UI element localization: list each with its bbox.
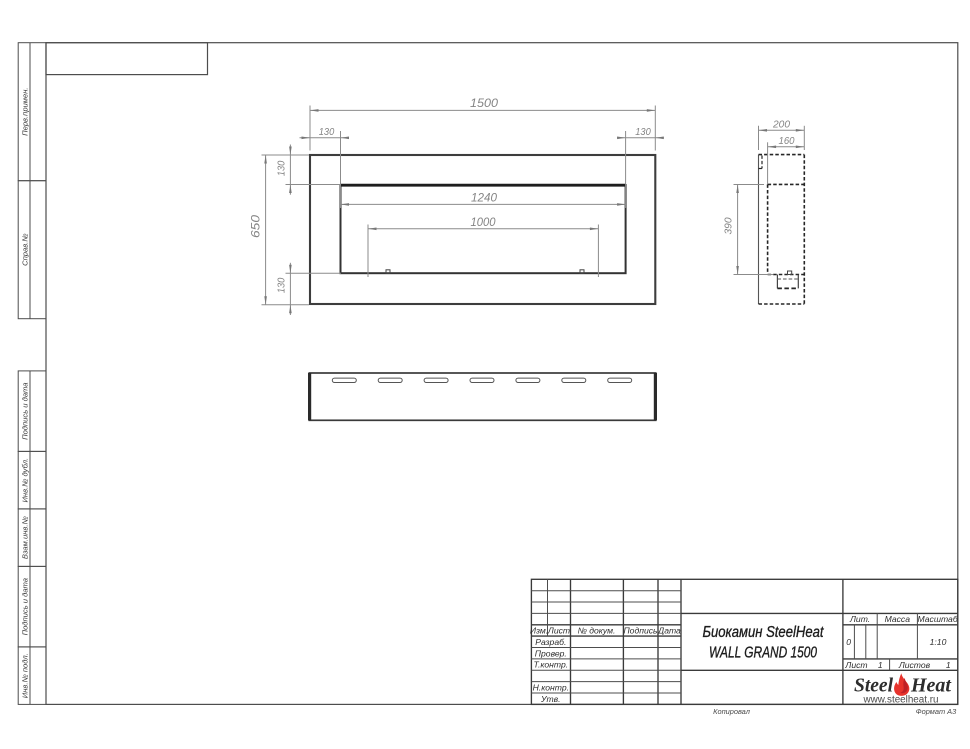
- svg-text:130: 130: [319, 126, 335, 138]
- svg-text:Листов: Листов: [898, 660, 931, 670]
- svg-text:www.steelheat.ru: www.steelheat.ru: [863, 695, 939, 706]
- svg-text:Подпись и дата: Подпись и дата: [21, 578, 30, 635]
- svg-text:Лист: Лист: [844, 660, 867, 670]
- svg-text:Формат А3: Формат А3: [916, 707, 957, 716]
- svg-text:1:10: 1:10: [930, 637, 947, 647]
- svg-text:650: 650: [249, 215, 263, 238]
- svg-text:Масса: Масса: [885, 614, 911, 624]
- svg-text:Изм.: Изм.: [530, 626, 548, 636]
- svg-text:1240: 1240: [471, 193, 498, 205]
- svg-text:130: 130: [276, 161, 288, 177]
- svg-text:Провер.: Провер.: [535, 648, 567, 658]
- svg-text:160: 160: [779, 135, 795, 147]
- svg-text:№ докум.: № докум.: [578, 626, 616, 636]
- svg-text:Heat: Heat: [910, 676, 952, 697]
- svg-text:Лит.: Лит.: [849, 614, 870, 624]
- svg-text:Перв.примен.: Перв.примен.: [21, 88, 30, 136]
- svg-text:Биокамин SteelHeat: Биокамин SteelHeat: [703, 624, 825, 641]
- svg-text:130: 130: [276, 278, 288, 294]
- svg-text:1500: 1500: [470, 98, 499, 110]
- svg-text:WALL GRAND 1500: WALL GRAND 1500: [709, 645, 817, 662]
- svg-text:Справ.№: Справ.№: [21, 233, 30, 265]
- svg-text:Дата: Дата: [657, 626, 681, 636]
- svg-text:Лист: Лист: [547, 626, 570, 636]
- svg-text:Подпись: Подпись: [623, 626, 658, 636]
- svg-text:Инв.№ дубл.: Инв.№ дубл.: [21, 458, 30, 503]
- svg-text:0: 0: [846, 637, 851, 647]
- svg-text:390: 390: [723, 217, 735, 234]
- svg-text:1: 1: [946, 660, 951, 670]
- svg-text:Копировал: Копировал: [713, 707, 751, 716]
- svg-text:Steel: Steel: [854, 676, 894, 697]
- svg-text:Утв.: Утв.: [540, 694, 561, 704]
- svg-text:Взам.инв.№: Взам.инв.№: [21, 516, 30, 559]
- svg-text:Подпись и дата: Подпись и дата: [21, 382, 30, 439]
- svg-text:1: 1: [878, 660, 883, 670]
- svg-text:Разраб.: Разраб.: [535, 637, 566, 647]
- svg-text:Н.контр.: Н.контр.: [533, 682, 569, 692]
- svg-text:1000: 1000: [471, 217, 497, 229]
- svg-text:Т.контр.: Т.контр.: [533, 660, 568, 670]
- svg-text:130: 130: [635, 126, 651, 138]
- svg-text:Масштаб: Масштаб: [918, 614, 959, 624]
- svg-text:Инв.№ подл.: Инв.№ подл.: [21, 653, 30, 698]
- svg-text:200: 200: [772, 118, 790, 130]
